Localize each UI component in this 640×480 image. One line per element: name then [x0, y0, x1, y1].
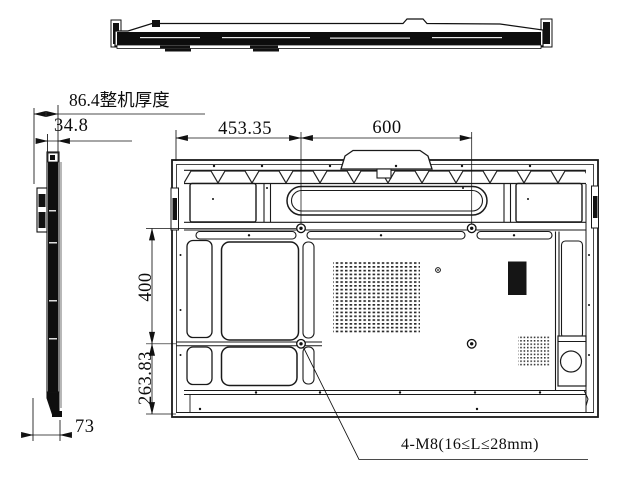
rear-view-drawing — [171, 151, 599, 418]
engineering-drawing: 86.4整机厚度 34.8 453.35 600 400 263.83 73 4… — [0, 0, 640, 480]
dim-bottom-depth: 73 — [75, 418, 95, 437]
heatsink-block — [508, 262, 527, 296]
side-view-drawing — [37, 152, 62, 417]
dim-edge-to-vesa: 453.35 — [203, 120, 287, 139]
dim-vesa-height: 400 — [136, 267, 156, 307]
dim-body-thickness: 34.8 — [54, 117, 88, 136]
subwoofer-port — [558, 336, 586, 386]
dim-vesa-width: 600 — [360, 119, 414, 138]
handle-slot — [287, 187, 487, 216]
drawing-linework — [0, 0, 640, 480]
mount-screw-spec-label: 4-M8(16≤L≤28mm) — [401, 437, 539, 453]
top-view-drawing — [111, 19, 552, 52]
speaker-grille — [518, 336, 550, 366]
dim-overall-thickness: 86.4整机厚度 — [69, 92, 170, 110]
ventilation-grid — [333, 262, 420, 334]
dim-vesa-to-bottom: 263.83 — [136, 346, 156, 410]
